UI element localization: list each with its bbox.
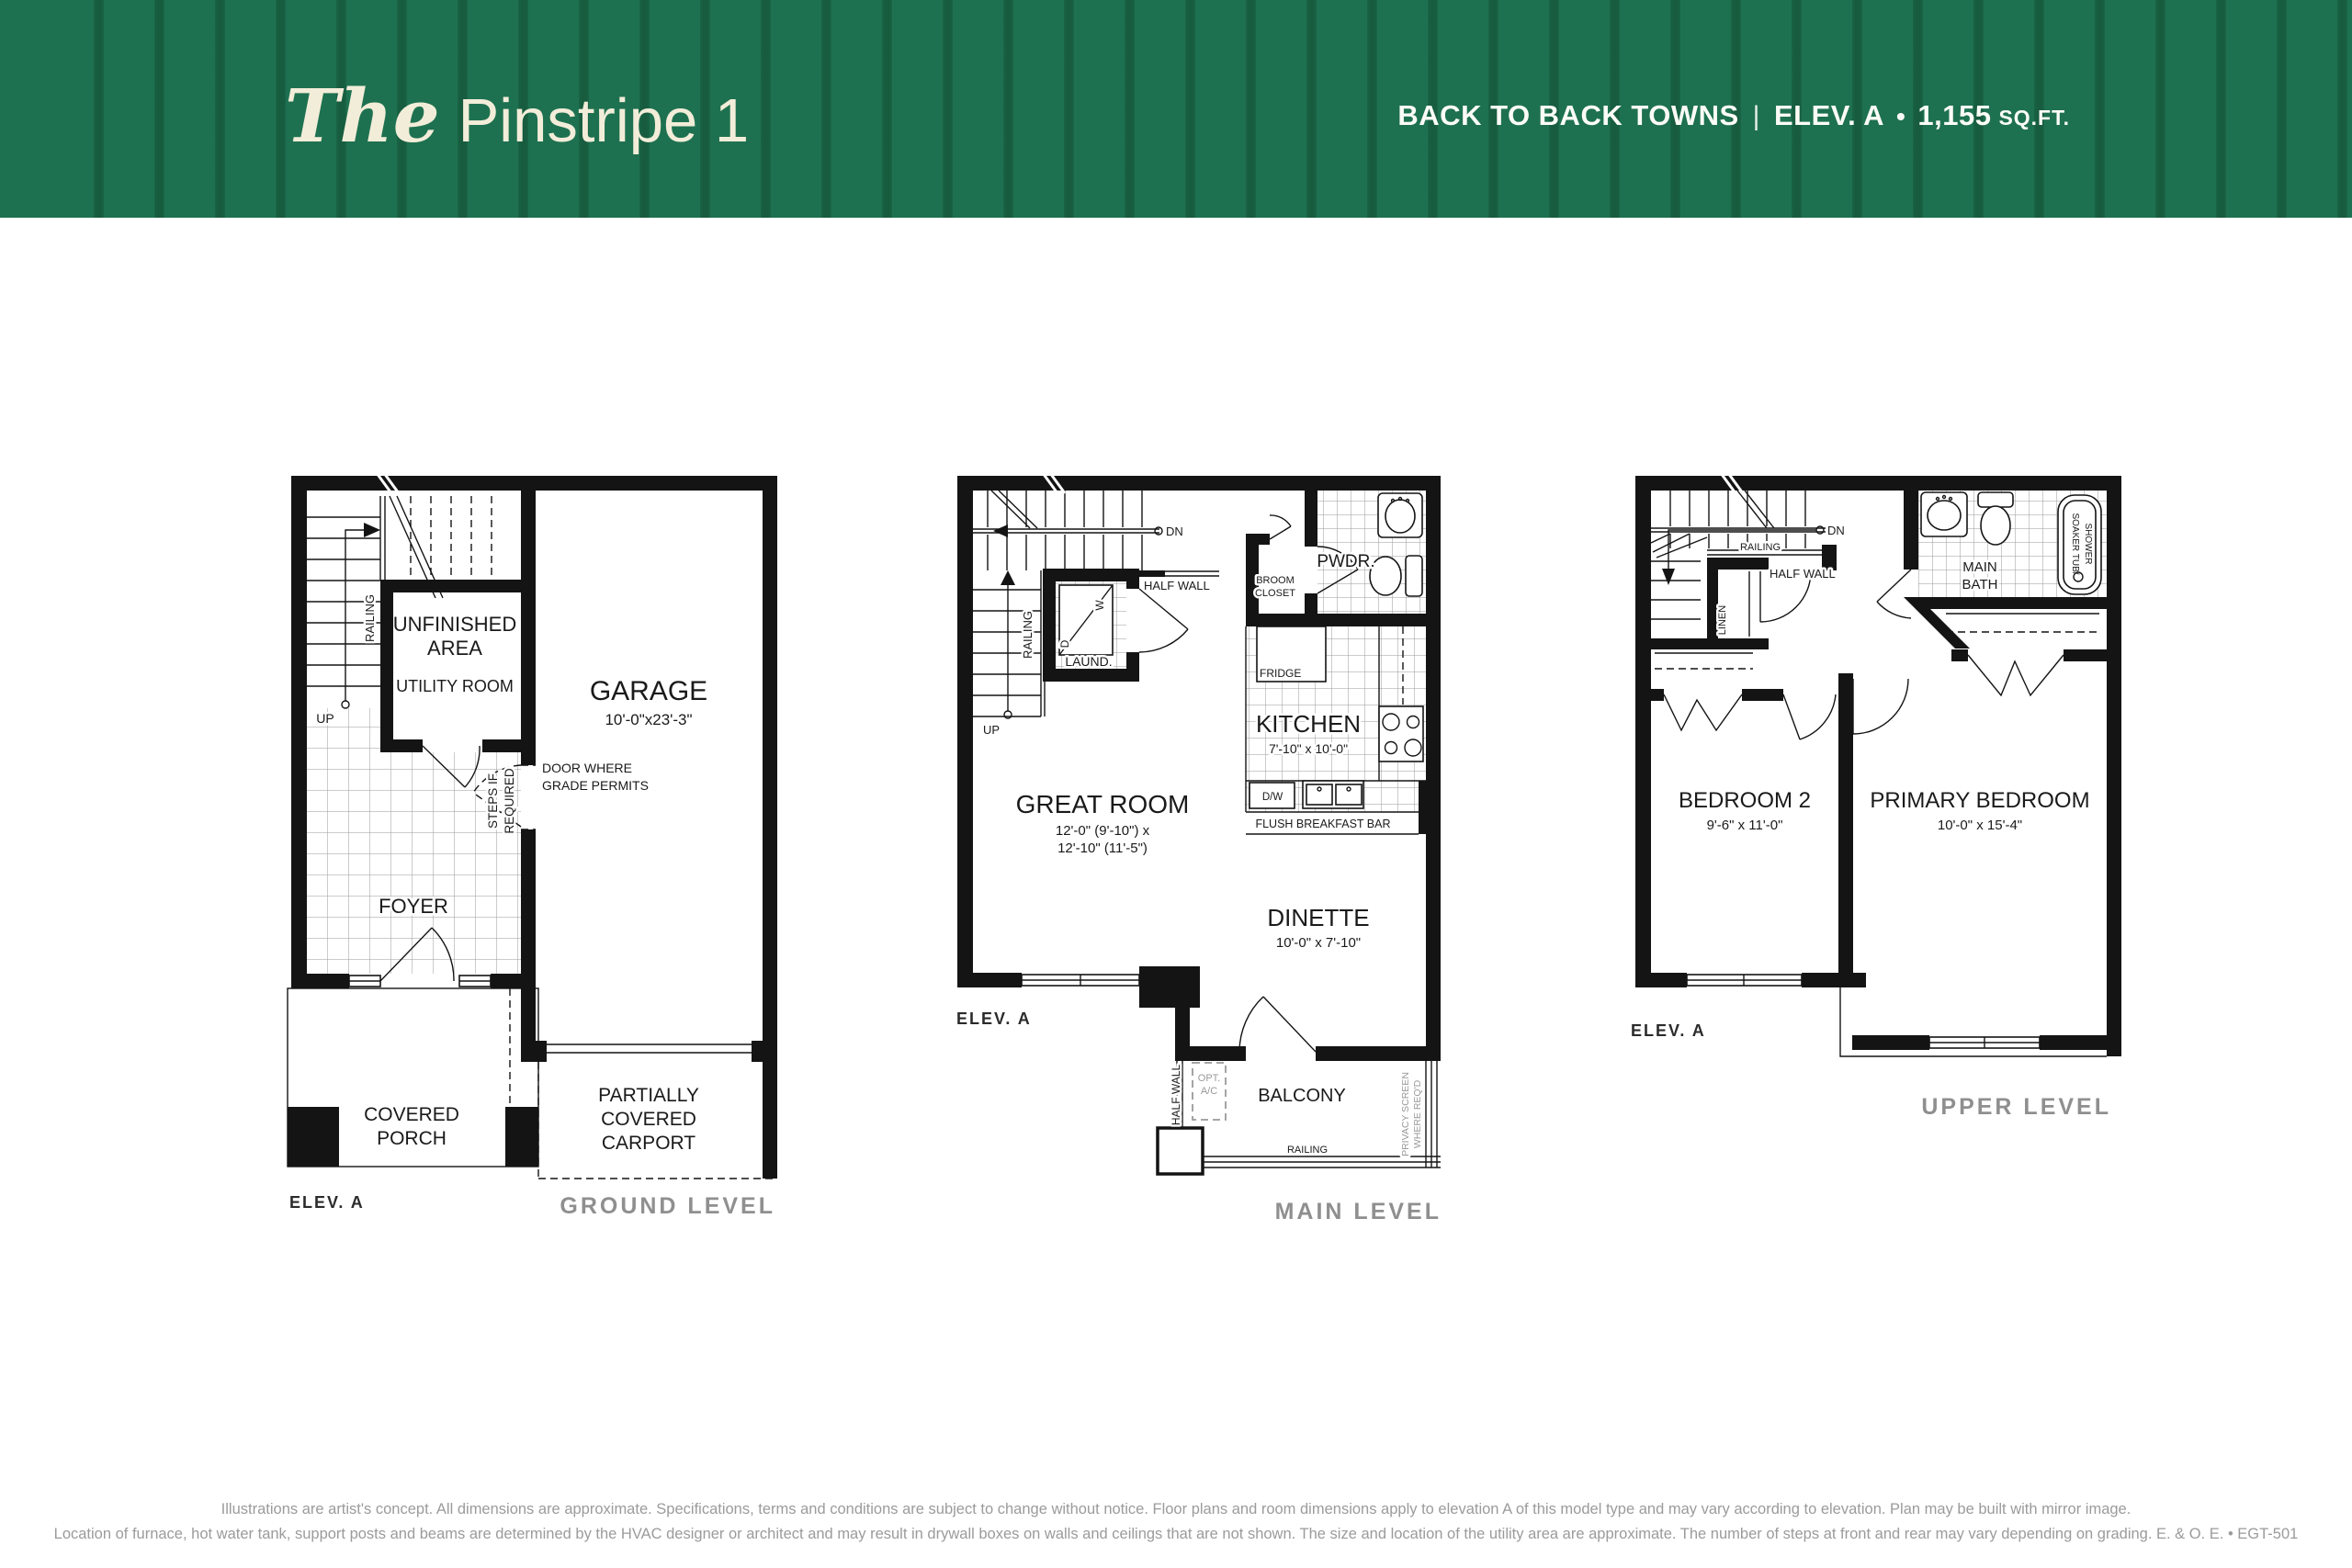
- bedroom2-dimensions: 9'-6" x 11'-0": [1707, 818, 1783, 833]
- steps-note: STEPS IF: [486, 773, 500, 829]
- half-wall-label: HALF WALL: [1770, 567, 1836, 581]
- fridge-label: FRIDGE: [1260, 667, 1301, 680]
- main-level-floor-plan: DN UP RAILING HALF WALL LAUND. W D BROOM…: [951, 473, 1447, 1281]
- powder-room-label: PWDR.: [1317, 552, 1374, 571]
- kitchen-label: KITCHEN: [1256, 710, 1361, 738]
- optional-ac-label: OPT.: [1198, 1073, 1220, 1084]
- privacy-screen-label-2: WHERE REQ'D: [1412, 1079, 1423, 1148]
- great-room-dimensions-2: 12'-10" (11'-5"): [1057, 840, 1148, 856]
- linen-closet: [1749, 571, 1811, 637]
- kitchen-dimensions: 7'-10" x 10'-0": [1269, 741, 1348, 756]
- primary-bedroom-label: PRIMARY BEDROOM: [1870, 788, 2089, 813]
- bedroom2-label: BEDROOM 2: [1679, 788, 1811, 813]
- utility-room-label: UTILITY ROOM: [396, 677, 514, 695]
- great-room-dimensions: 12'-0" (9'-10") x: [1056, 823, 1150, 839]
- stair-arrow-icon: [993, 525, 1008, 537]
- washer-label: W: [1093, 600, 1106, 611]
- covered-porch-label: COVERED: [364, 1104, 459, 1125]
- soaker-tub-label-2: SHOWER: [2083, 524, 2093, 565]
- unfinished-area-label-2: AREA: [427, 637, 482, 660]
- foyer-label: FOYER: [379, 895, 448, 918]
- door-grade-note: DOOR WHERE: [542, 761, 632, 775]
- ground-elevation-label: ELEV. A: [289, 1193, 365, 1212]
- breakfast-bar-label: FLUSH BREAKFAST BAR: [1255, 818, 1390, 830]
- product-type-label: BACK TO BACK TOWNS: [1397, 99, 1738, 132]
- bedroom2-closet: [1655, 653, 1753, 730]
- garage-dimensions: 10'-0"x23'-3": [605, 711, 692, 728]
- dn-arrow-icon: [1662, 569, 1675, 585]
- balcony-label: BALCONY: [1258, 1086, 1346, 1106]
- great-room-label: GREAT ROOM: [1016, 790, 1190, 818]
- upper-level-caption: UPPER LEVEL: [1921, 1094, 2111, 1120]
- covered-porch-label-2: PORCH: [377, 1128, 447, 1149]
- linen-label: LINEN: [1717, 605, 1728, 635]
- great-room-window: [1022, 975, 1139, 986]
- dinette-dimensions: 10'-0" x 7'-10": [1276, 935, 1361, 951]
- privacy-screen-label: PRIVACY SCREEN: [1400, 1072, 1411, 1156]
- ground-level-floor-plan: UNFINISHED AREA UTILITY ROOM GARAGE 10'-…: [285, 473, 781, 1281]
- broom-closet-label: BROOM: [1256, 575, 1295, 586]
- sqft-value: 1,155: [1917, 99, 1991, 132]
- model-title: The Pinstripe 1: [285, 79, 749, 152]
- primary-bedroom-dimensions: 10'-0" x 15'-4": [1938, 818, 2022, 833]
- bullet-separator: •: [1896, 102, 1905, 131]
- main-bath-label-2: BATH: [1962, 577, 1998, 592]
- dishwasher-label: D/W: [1262, 792, 1283, 803]
- dn-label: DN: [1166, 525, 1183, 538]
- main-elevation-label: ELEV. A: [956, 1010, 1032, 1028]
- steps-note-2: REQUIRED: [503, 768, 516, 834]
- unfinished-area-label: UNFINISHED: [393, 613, 516, 636]
- elevation-label: ELEV. A: [1774, 99, 1884, 132]
- door-grade-note-2: GRADE PERMITS: [542, 778, 649, 793]
- balcony-half-wall-label: HALF WALL: [1170, 1065, 1182, 1126]
- carport-label-2: COVERED: [601, 1109, 696, 1130]
- upper-level-floor-plan: DN RAILING HALF WALL LINEN MAIN BATH SOA…: [1629, 473, 2130, 1171]
- balcony-door-swing-icon: [1239, 997, 1316, 1052]
- disclaimer-line-1: Illustrations are artist's concept. All …: [0, 1497, 2352, 1522]
- model-specs: BACK TO BACK TOWNS | ELEV. A • 1,155 SQ.…: [1397, 99, 2070, 132]
- main-level-caption: MAIN LEVEL: [1275, 1199, 1442, 1224]
- divider-bar: |: [1753, 101, 1760, 132]
- carport-label: PARTIALLY: [598, 1085, 699, 1106]
- soaker-tub-label: SOAKER TUB/: [2070, 513, 2080, 574]
- header-banner: The Pinstripe 1 BACK TO BACK TOWNS | ELE…: [0, 0, 2352, 218]
- up-arrow-icon: [1001, 570, 1015, 585]
- optional-ac-label-2: A/C: [1201, 1086, 1217, 1097]
- half-wall-label: HALF WALL: [1144, 579, 1210, 592]
- dinette-label: DINETTE: [1267, 904, 1369, 931]
- sqft-unit: SQ.FT.: [1998, 106, 2070, 130]
- legal-disclaimer: Illustrations are artist's concept. All …: [0, 1497, 2352, 1546]
- dryer-label: D: [1058, 639, 1071, 648]
- balcony-railing-label: RAILING: [1287, 1145, 1328, 1156]
- railing-label: RAILING: [1740, 542, 1781, 553]
- model-title-the: The: [285, 79, 440, 152]
- railing-label: RAILING: [1021, 611, 1035, 659]
- main-bath-label: MAIN: [1962, 559, 1997, 575]
- dn-label: DN: [1827, 524, 1845, 537]
- up-label: UP: [983, 723, 1000, 737]
- half-wall-line: [1165, 571, 1219, 576]
- up-arrow-icon: [364, 523, 380, 537]
- carport-label-3: CARPORT: [602, 1133, 695, 1154]
- garage-label: GARAGE: [590, 676, 707, 706]
- disclaimer-line-2: Location of furnace, hot water tank, sup…: [0, 1522, 2352, 1547]
- upper-elevation-label: ELEV. A: [1631, 1021, 1706, 1040]
- railing-label: RAILING: [363, 594, 377, 642]
- laundry-label: LAUND.: [1065, 654, 1112, 669]
- broom-closet-label-2: CLOSET: [1255, 588, 1295, 599]
- model-title-name: Pinstripe 1: [458, 90, 750, 152]
- brochure-page: The Pinstripe 1 BACK TO BACK TOWNS | ELE…: [0, 0, 2352, 1568]
- up-label: UP: [316, 711, 334, 726]
- ground-level-caption: GROUND LEVEL: [560, 1193, 775, 1219]
